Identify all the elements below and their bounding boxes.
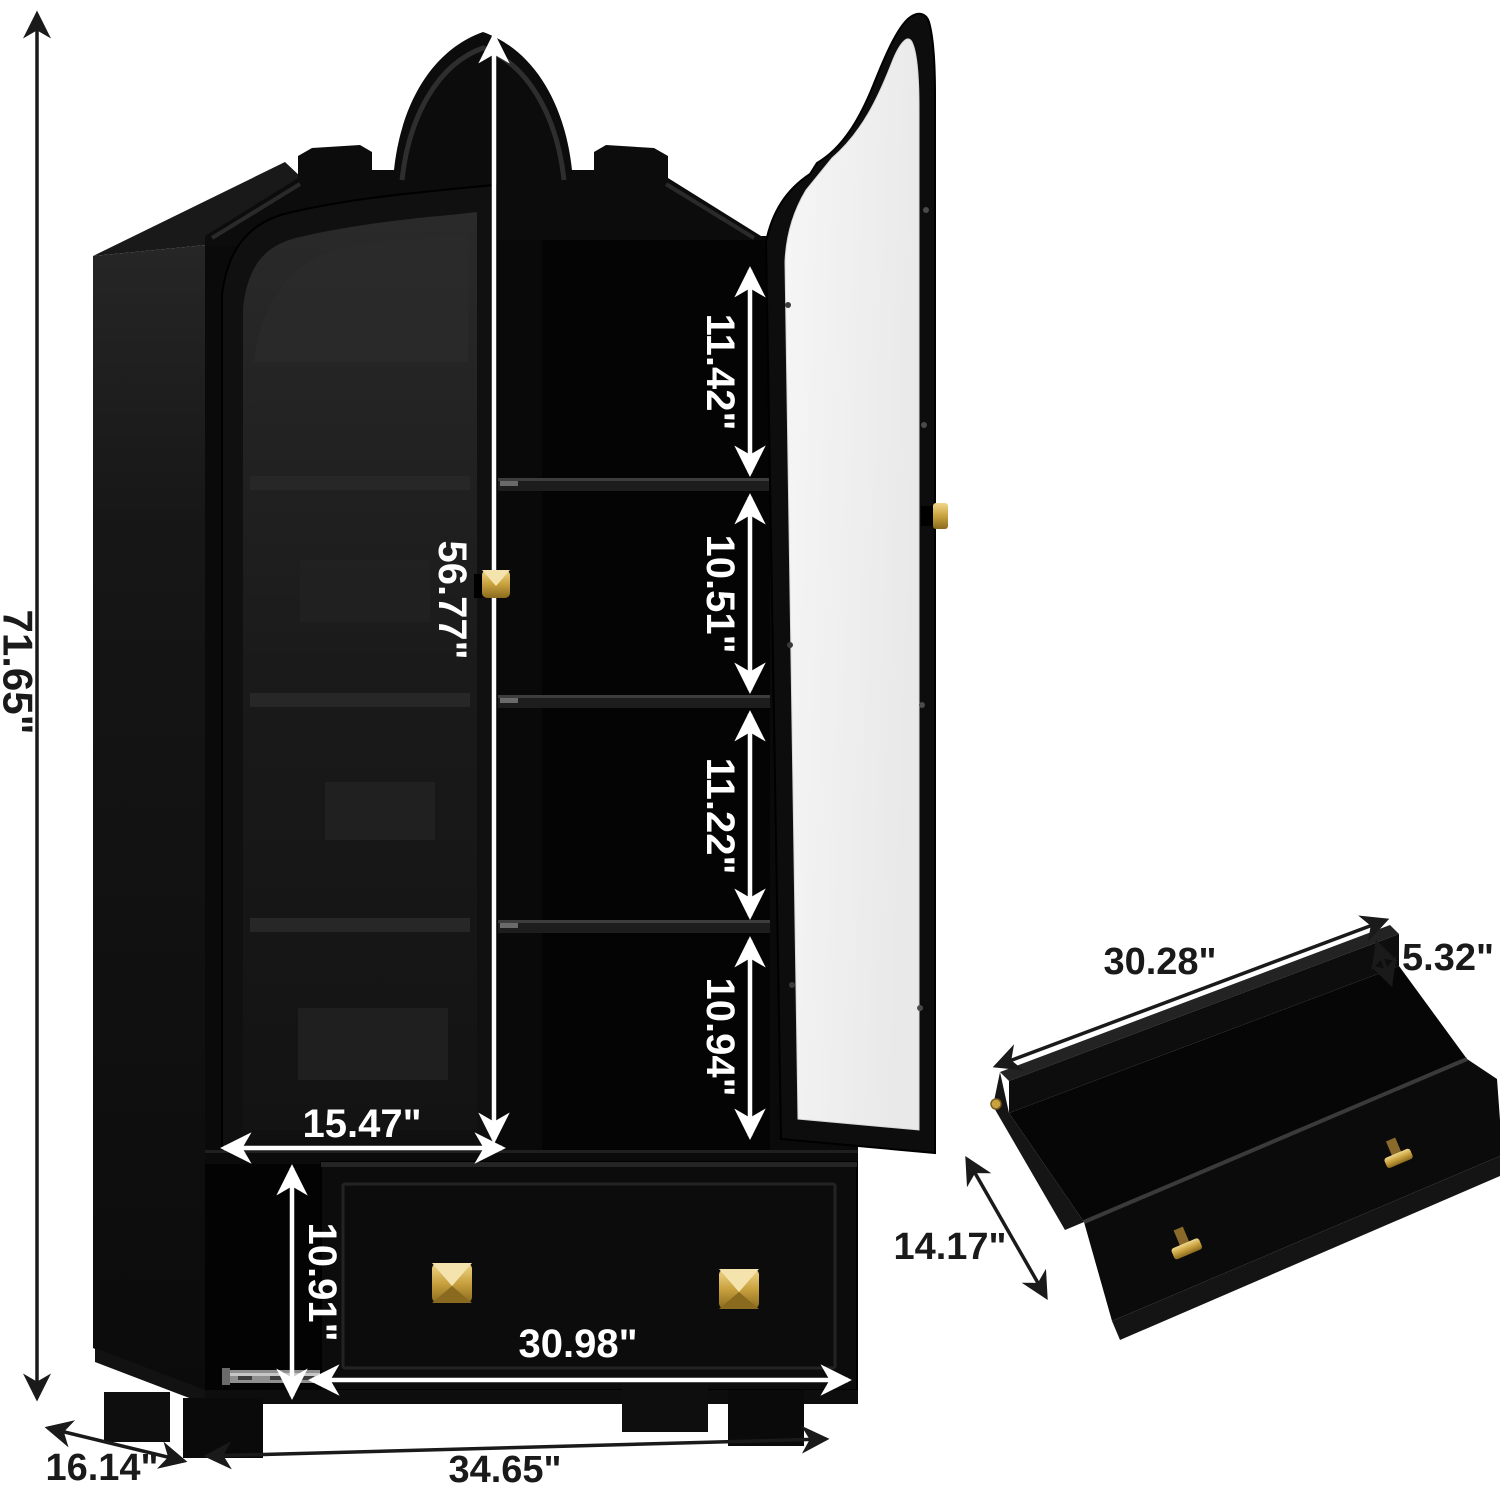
label-detail-thickness: 5.32" [1402,937,1494,979]
label-door-height: 56.77" [430,540,474,659]
drawer-slide-rail [222,1368,328,1385]
mid-rail-highlight [205,1150,858,1153]
drawer-knob-right [719,1269,759,1309]
label-drawer-width: 30.98" [518,1322,637,1366]
dim-detail-depth: 14.17" [893,1159,1046,1297]
cabinet-illustration [93,14,948,1458]
label-door-width: 15.47" [302,1102,421,1146]
door-screw-2 [921,422,927,428]
foot-back-right [622,1384,708,1432]
shelf-3 [498,920,770,933]
door-screw-1 [923,207,929,213]
open-door-knob [921,503,948,529]
door-hinge-screw-2 [787,642,793,648]
glass-item-silhouette-1 [300,560,430,622]
left-door-knob [474,570,510,598]
cabinet-side-panel [93,245,206,1398]
label-shelf-opening-1: 11.42" [698,314,742,431]
dim-overall-width: 34.65" [207,1439,826,1491]
label-drawer-height: 10.91" [300,1222,344,1341]
open-door-glass [785,39,919,1130]
drawer-front-top-edge [321,1162,857,1167]
label-detail-depth: 14.17" [893,1226,1006,1268]
label-shelf-opening-4: 10.94" [698,977,742,1096]
door-screw-3 [919,702,925,708]
glass-shelf-band-2 [250,693,470,707]
glass-item-silhouette-3 [298,1008,448,1080]
label-shelf-opening-3: 11.22" [698,758,742,875]
glass-shelf-band-1 [250,476,470,490]
glass-shelf-band-3 [250,918,470,932]
glass-item-silhouette-2 [325,782,435,840]
dim-overall-height: 71.65" [0,14,42,1398]
door-screw-4 [917,1005,923,1011]
door-hinge-screw-1 [785,302,791,308]
label-detail-width: 30.28" [1103,941,1216,983]
label-shelf-opening-2: 10.51" [698,534,742,653]
foot-front-right [728,1390,804,1446]
drawer-knob-left [432,1263,472,1303]
foot-back-left [104,1392,170,1442]
open-right-door [766,14,948,1153]
label-overall-width: 34.65" [448,1449,561,1491]
foot-front-left [183,1398,263,1458]
detached-drawer-detail [991,925,1500,1340]
product-diagram: 71.65" 56.77" 11.42" 10.51" 11.22" 10.94… [0,0,1500,1491]
cabinet-dimension-illustration: 71.65" 56.77" 11.42" 10.51" 11.22" 10.94… [0,0,1500,1491]
label-overall-height: 71.65" [0,609,42,734]
shelf-1 [498,478,770,491]
label-overall-depth: 16.14" [45,1447,158,1489]
detail-drawer-side-bolt [991,1099,1001,1109]
left-glass-door [222,185,496,1150]
door-hinge-screw-3 [789,982,795,988]
shelf-2 [498,695,770,708]
